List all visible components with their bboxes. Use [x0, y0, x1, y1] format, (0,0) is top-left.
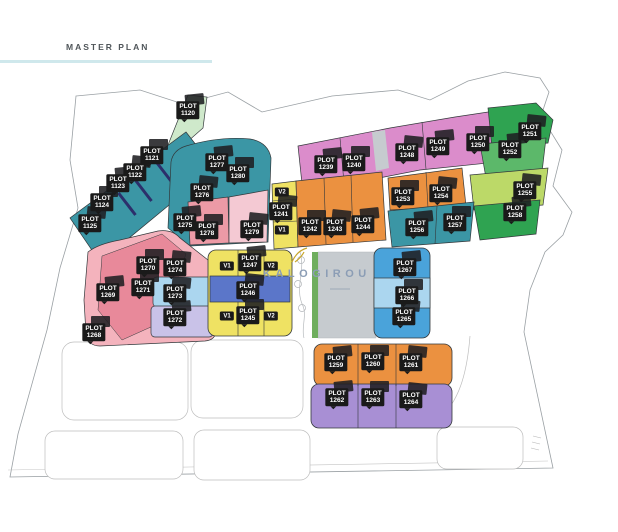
- plot-label-1268[interactable]: PLOT1268: [82, 323, 105, 341]
- labels-layer: PLOT1120PLOT1121PLOT1122PLOT1123PLOT1124…: [0, 0, 618, 532]
- type-marker-v2-19[interactable]: V2: [275, 188, 289, 197]
- plot-label-1259[interactable]: PLOT1259: [324, 353, 347, 371]
- plot-label-1120[interactable]: PLOT1120: [176, 101, 199, 119]
- plot-label-1275[interactable]: PLOT1275: [173, 213, 196, 231]
- plot-label-1273[interactable]: PLOT1273: [163, 284, 186, 302]
- plot-label-1245[interactable]: PLOT1245: [236, 306, 259, 324]
- plot-label-1125[interactable]: PLOT1125: [78, 214, 101, 232]
- plot-label-1124[interactable]: PLOT1124: [90, 193, 113, 211]
- plot-label-1267[interactable]: PLOT1267: [393, 258, 416, 276]
- plot-label-1272[interactable]: PLOT1272: [163, 308, 186, 326]
- brand-subtext: [330, 288, 350, 290]
- plot-label-1244[interactable]: PLOT1244: [351, 215, 374, 233]
- plot-label-1260[interactable]: PLOT1260: [361, 352, 384, 370]
- type-marker-v2-40[interactable]: V2: [264, 262, 278, 271]
- plot-label-1240[interactable]: PLOT1240: [342, 153, 365, 171]
- plot-label-1241[interactable]: PLOT1241: [269, 202, 292, 220]
- plot-label-1269[interactable]: PLOT1269: [96, 283, 119, 301]
- plot-label-1279[interactable]: PLOT1279: [240, 220, 263, 238]
- plot-label-1266[interactable]: PLOT1266: [395, 286, 418, 304]
- plot-label-1121[interactable]: PLOT1121: [140, 146, 163, 164]
- plot-label-1261[interactable]: PLOT1261: [399, 353, 422, 371]
- plot-label-1254[interactable]: PLOT1254: [429, 184, 452, 202]
- plot-label-1242[interactable]: PLOT1242: [298, 217, 321, 235]
- type-marker-v1-38[interactable]: V1: [220, 262, 234, 271]
- plot-label-1256[interactable]: PLOT1256: [405, 218, 428, 236]
- brand-wordmark: KALOGIROU: [263, 268, 393, 280]
- plot-label-1265[interactable]: PLOT1265: [392, 307, 415, 325]
- plot-label-1239[interactable]: PLOT1239: [314, 155, 337, 173]
- type-marker-v1-21[interactable]: V1: [275, 226, 289, 235]
- plot-label-1243[interactable]: PLOT1243: [323, 217, 346, 235]
- plot-label-1248[interactable]: PLOT1248: [395, 143, 418, 161]
- plot-label-1278[interactable]: PLOT1278: [195, 221, 218, 239]
- plot-label-1270[interactable]: PLOT1270: [136, 256, 159, 274]
- plot-label-1253[interactable]: PLOT1253: [391, 187, 414, 205]
- plot-label-1246[interactable]: PLOT1246: [236, 281, 259, 299]
- plot-label-1262[interactable]: PLOT1262: [325, 388, 348, 406]
- plot-label-1277[interactable]: PLOT1277: [205, 153, 228, 171]
- plot-label-1257[interactable]: PLOT1257: [443, 213, 466, 231]
- plot-label-1255[interactable]: PLOT1255: [513, 181, 536, 199]
- plot-label-1274[interactable]: PLOT1274: [163, 258, 186, 276]
- type-marker-v2-44[interactable]: V2: [264, 312, 278, 321]
- plot-label-1250[interactable]: PLOT1250: [466, 133, 489, 151]
- plot-label-1280[interactable]: PLOT1280: [226, 164, 249, 182]
- plot-label-1252[interactable]: PLOT1252: [498, 140, 521, 158]
- plot-label-1271[interactable]: PLOT1271: [131, 278, 154, 296]
- plot-label-1247[interactable]: PLOT1247: [238, 253, 261, 271]
- plot-label-1264[interactable]: PLOT1264: [399, 390, 422, 408]
- plot-label-1276[interactable]: PLOT1276: [190, 183, 213, 201]
- plot-label-1123[interactable]: PLOT1123: [106, 174, 129, 192]
- master-plan-canvas: MASTER PLAN: [0, 0, 618, 532]
- type-marker-v1-42[interactable]: V1: [220, 312, 234, 321]
- plot-label-1263[interactable]: PLOT1263: [361, 388, 384, 406]
- plot-label-1249[interactable]: PLOT1249: [426, 137, 449, 155]
- plot-label-1251[interactable]: PLOT1251: [518, 122, 541, 140]
- plot-label-1258[interactable]: PLOT1258: [503, 203, 526, 221]
